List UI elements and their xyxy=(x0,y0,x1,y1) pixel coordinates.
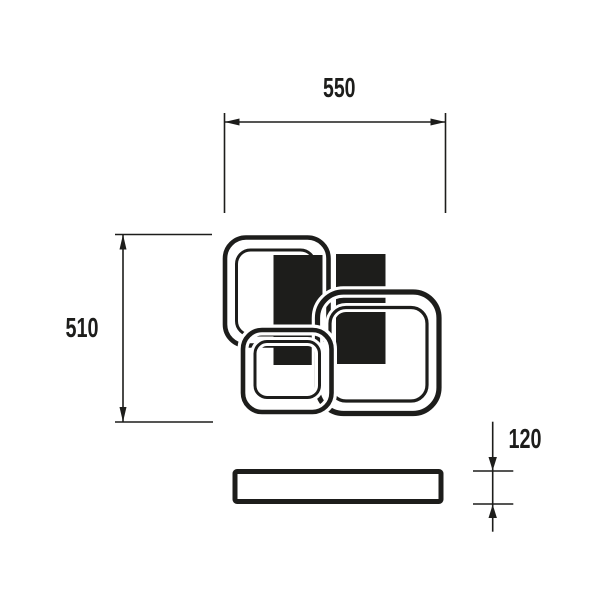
dim-depth-label: 120 xyxy=(509,423,542,454)
arrowhead-down-icon xyxy=(120,407,127,422)
arrowhead-up-icon xyxy=(120,235,127,250)
side-profile-outline xyxy=(235,472,441,502)
dimension-height: 510 xyxy=(66,235,214,423)
dimension-depth: 120 xyxy=(473,422,542,532)
arrowhead-down-icon xyxy=(489,457,497,471)
drawing-canvas: 550 510 xyxy=(0,0,600,600)
dim-height-label: 510 xyxy=(66,312,99,343)
fixture-dimension-drawing: 550 510 xyxy=(0,0,600,600)
dim-width-label: 550 xyxy=(323,72,356,103)
top-view xyxy=(225,238,439,414)
side-view xyxy=(235,472,441,502)
arrowhead-up-icon xyxy=(489,505,497,519)
dimension-width: 550 xyxy=(225,72,446,213)
arrowhead-right-icon xyxy=(431,119,446,126)
arrowhead-left-icon xyxy=(225,119,240,126)
